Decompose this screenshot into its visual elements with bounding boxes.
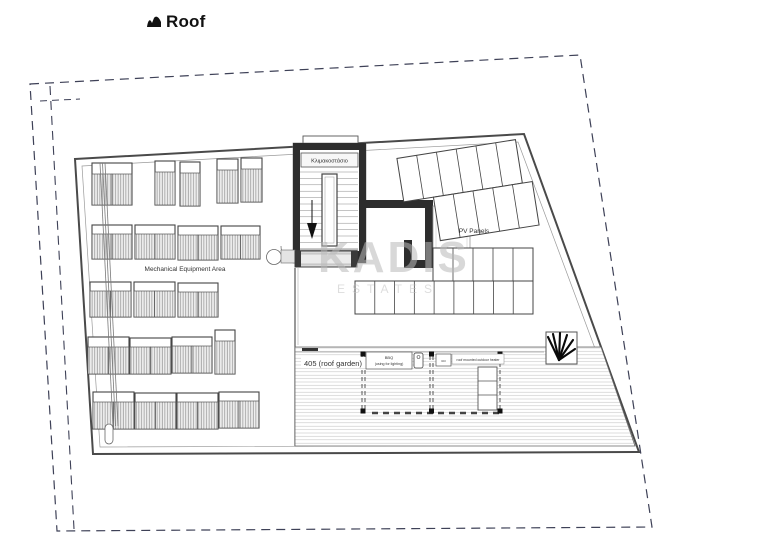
table-symbol <box>478 367 497 410</box>
mechanical-area-label: Mechanical Equipment Area <box>145 266 226 273</box>
roof-plan-page: Mechanical Equipment Area Κλιμακοστάσιο <box>0 0 768 545</box>
title-block: Roof <box>146 12 206 32</box>
roof-garden-label: 405 (roof garden) <box>304 359 362 368</box>
heater-label-box: roof mounted outdoor heater <box>452 354 504 364</box>
bbq-label-line1: BBQ <box>385 355 393 360</box>
stair-label: Κλιμακοστάσιο <box>311 158 348 165</box>
page-title: Roof <box>166 12 206 32</box>
stair-well-slot <box>322 174 337 246</box>
bbq-label-box: BBQ (using for lighting) <box>366 352 412 369</box>
pv-panels-label: PV Panels <box>459 228 490 235</box>
boundary-inner-line <box>50 86 74 529</box>
palm-tree-icon <box>546 332 577 364</box>
roof-garden-deck: 405 (roof garden) BBQ (using for lightin… <box>295 332 635 446</box>
title-glyph-icon <box>146 13 164 31</box>
heater-label: roof mounted outdoor heater <box>457 358 501 362</box>
bbq-label-line2: (using for lighting) <box>375 362 404 366</box>
co-label-box: co <box>436 354 451 366</box>
stair-core: Κλιμακοστάσιο <box>293 136 366 263</box>
roof-plan-drawing: Mechanical Equipment Area Κλιμακοστάσιο <box>0 0 768 545</box>
tank-symbol <box>267 250 282 265</box>
gas-bottle-icon <box>414 353 423 368</box>
boundary-stub-line <box>40 99 80 101</box>
